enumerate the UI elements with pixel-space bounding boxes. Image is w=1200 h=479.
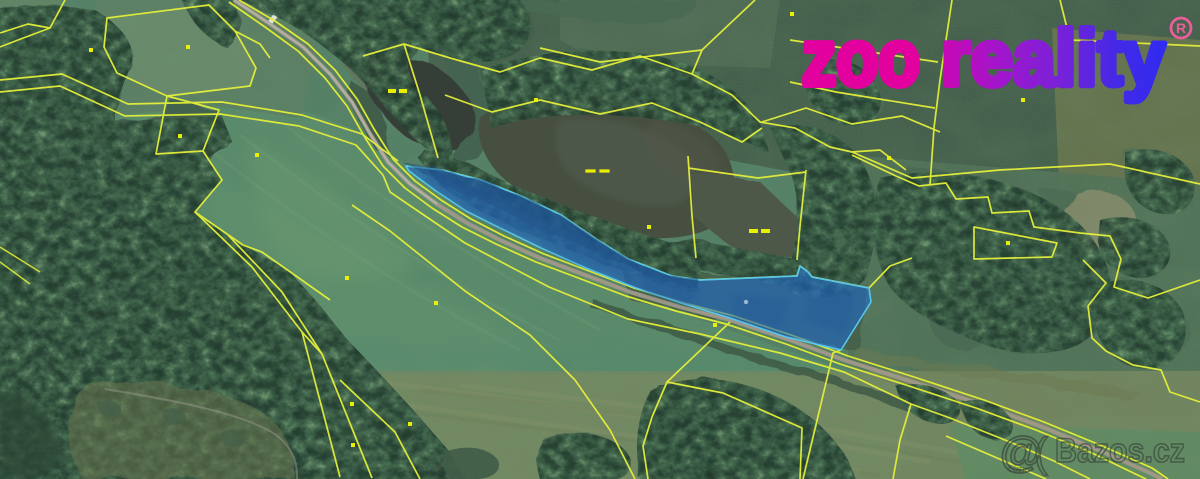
svg-text:Bazos.cz: Bazos.cz xyxy=(1055,432,1185,470)
svg-text:reality: reality xyxy=(941,13,1165,102)
svg-text:(: ( xyxy=(1034,429,1048,476)
svg-text:zoo: zoo xyxy=(802,13,920,102)
svg-text:R: R xyxy=(1176,20,1186,36)
svg-text:ČÚZK: ČÚZK xyxy=(1008,465,1027,474)
svg-text:ČÚZK: ČÚZK xyxy=(421,464,443,473)
